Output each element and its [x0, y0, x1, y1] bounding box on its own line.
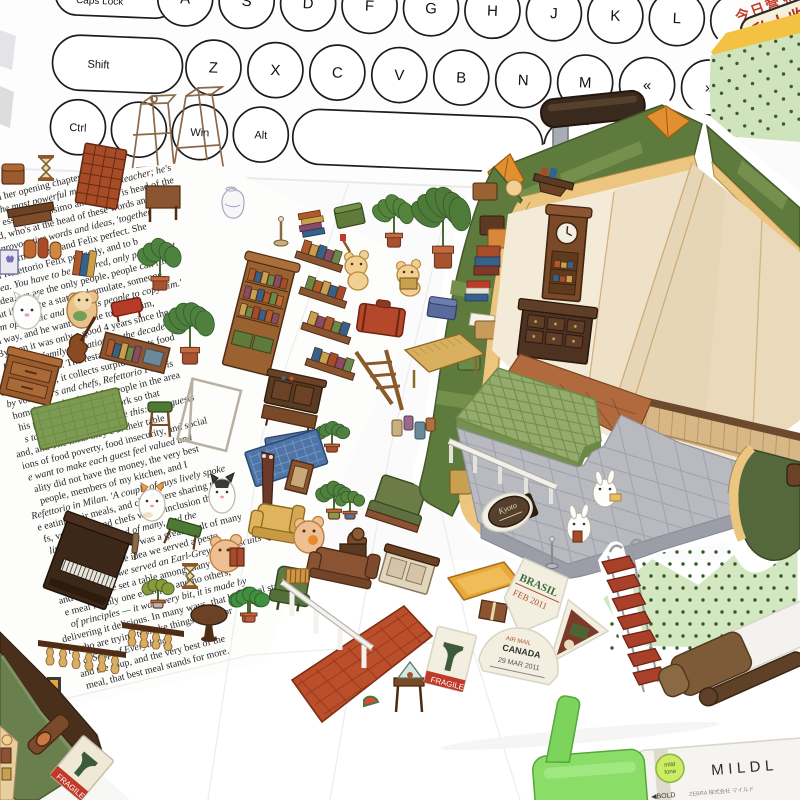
svg-text:◀BOLD: ◀BOLD: [651, 792, 676, 800]
svg-text:D: D: [302, 0, 314, 13]
svg-text:L: L: [672, 10, 681, 27]
svg-text:H: H: [487, 3, 499, 20]
svg-text:M: M: [579, 74, 592, 91]
svg-text:Shift: Shift: [87, 59, 109, 72]
svg-text:B: B: [456, 69, 467, 86]
svg-text:tone: tone: [664, 769, 677, 776]
svg-text:G: G: [425, 0, 437, 17]
svg-text:F: F: [365, 0, 375, 15]
svg-text:X: X: [270, 62, 281, 79]
svg-text:Ctrl: Ctrl: [69, 122, 87, 135]
svg-text:Alt: Alt: [254, 129, 267, 142]
svg-text:mild: mild: [664, 762, 675, 769]
svg-text:«: «: [643, 77, 652, 94]
svg-text:A: A: [180, 0, 191, 8]
svg-text:Z: Z: [209, 59, 219, 76]
svg-text:C: C: [332, 64, 344, 81]
svg-text:N: N: [517, 72, 529, 89]
svg-text:K: K: [610, 8, 621, 25]
svg-text:Win: Win: [190, 127, 209, 140]
svg-text:S: S: [241, 0, 252, 10]
svg-text:J: J: [550, 5, 558, 22]
svg-text:V: V: [394, 67, 405, 84]
